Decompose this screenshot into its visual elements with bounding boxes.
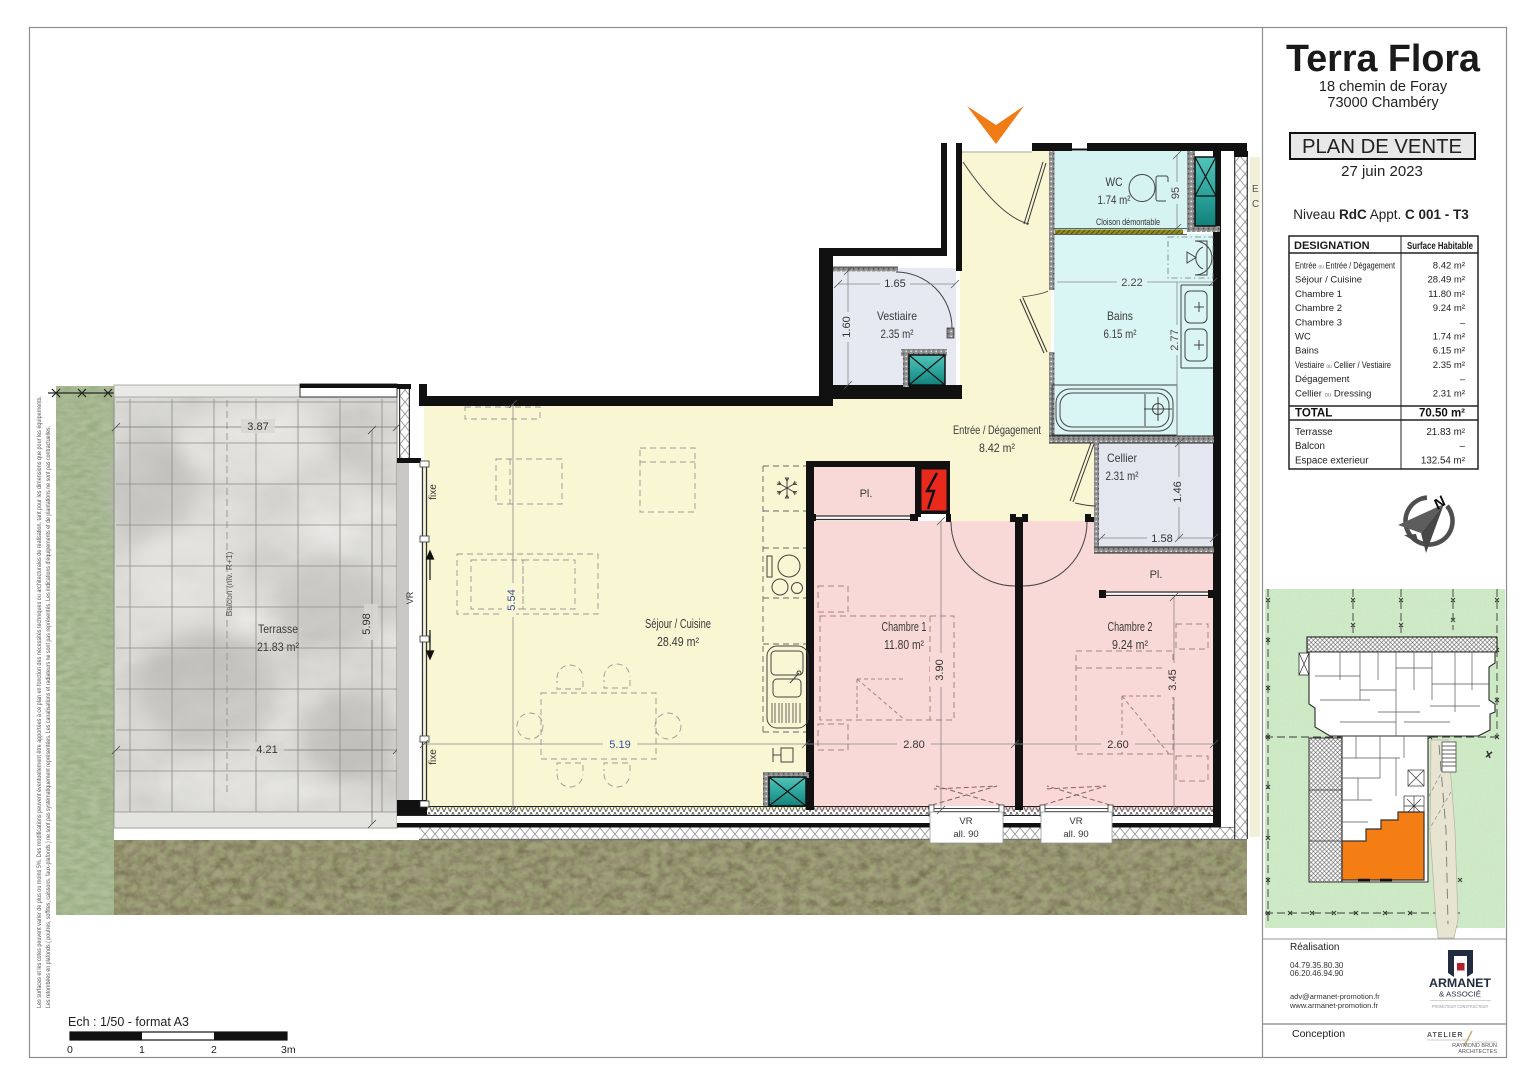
svg-text:Bains: Bains bbox=[1107, 309, 1133, 323]
svg-text:3m: 3m bbox=[281, 1044, 296, 1056]
svg-text:1.58: 1.58 bbox=[1151, 533, 1172, 545]
svg-text:PROMOTEUR CONSTRUCTEUR: PROMOTEUR CONSTRUCTEUR bbox=[1432, 1004, 1489, 1009]
svg-text:Terrasse: Terrasse bbox=[1295, 427, 1333, 438]
svg-text:3.87: 3.87 bbox=[247, 421, 268, 433]
svg-text:Vestiaire ou Cellier / Vestiai: Vestiaire ou Cellier / Vestiaire bbox=[1295, 360, 1391, 371]
svg-text:Conception: Conception bbox=[1292, 1028, 1345, 1040]
svg-text:Ech : 1/50 - format A3: Ech : 1/50 - format A3 bbox=[68, 1015, 189, 1029]
svg-text:Cellier: Cellier bbox=[1107, 451, 1137, 465]
svg-text:3.90: 3.90 bbox=[934, 659, 946, 680]
svg-text:Vestiaire: Vestiaire bbox=[877, 309, 917, 323]
svg-text:Balcon (niv. R+1): Balcon (niv. R+1) bbox=[224, 551, 234, 616]
svg-text:70.50 m²: 70.50 m² bbox=[1419, 408, 1465, 420]
svg-text:ATELIER: ATELIER bbox=[1427, 1032, 1463, 1039]
svg-text:2.80: 2.80 bbox=[903, 739, 924, 751]
svg-text:TOTAL: TOTAL bbox=[1295, 408, 1332, 420]
svg-text:–: – bbox=[1460, 441, 1466, 452]
svg-text:2.22: 2.22 bbox=[1121, 277, 1142, 289]
svg-text:fixe: fixe bbox=[428, 749, 439, 765]
svg-text:Bains: Bains bbox=[1295, 346, 1319, 357]
svg-text:Entrée ou Entrée / Dégagement: Entrée ou Entrée / Dégagement bbox=[1295, 261, 1395, 272]
svg-text:fixe: fixe bbox=[428, 484, 439, 500]
svg-text:Espace exterieur: Espace exterieur bbox=[1295, 455, 1369, 466]
svg-text:11.80 m²: 11.80 m² bbox=[1428, 289, 1465, 300]
svg-text:2.60: 2.60 bbox=[1107, 739, 1128, 751]
svg-text:2.35 m²: 2.35 m² bbox=[1433, 360, 1465, 371]
svg-text:95: 95 bbox=[1170, 187, 1182, 199]
svg-text:ARCHITECTES: ARCHITECTES bbox=[1458, 1049, 1497, 1055]
svg-text:adv@armanet-promotion.fr: adv@armanet-promotion.fr bbox=[1290, 992, 1380, 1001]
svg-text:Pl.: Pl. bbox=[1150, 569, 1163, 581]
svg-text:Réalisation: Réalisation bbox=[1290, 942, 1339, 953]
svg-text:6.15 m²: 6.15 m² bbox=[1433, 346, 1465, 357]
svg-text:WC: WC bbox=[1106, 175, 1123, 189]
svg-text:4.21: 4.21 bbox=[256, 744, 277, 756]
svg-text:73000 Chambéry: 73000 Chambéry bbox=[1327, 95, 1439, 111]
svg-text:27 juin 2023: 27 juin 2023 bbox=[1341, 163, 1423, 180]
svg-text:28.49 m²: 28.49 m² bbox=[1428, 275, 1466, 286]
svg-text:DESIGNATION: DESIGNATION bbox=[1294, 240, 1370, 252]
svg-text:28.49 m²: 28.49 m² bbox=[657, 635, 699, 649]
svg-text:www.armanet-promotion.fr: www.armanet-promotion.fr bbox=[1289, 1001, 1378, 1010]
svg-text:5.54: 5.54 bbox=[506, 589, 518, 610]
svg-text:Balcon: Balcon bbox=[1295, 441, 1325, 452]
svg-text:1.60: 1.60 bbox=[841, 316, 853, 337]
svg-text:3.45: 3.45 bbox=[1167, 669, 1179, 690]
svg-text:Les retombées en plafonds ( po: Les retombées en plafonds ( poutres, sof… bbox=[46, 426, 52, 1008]
svg-text:2: 2 bbox=[211, 1044, 217, 1056]
svg-text:0: 0 bbox=[67, 1044, 73, 1056]
svg-text:Terra Flora: Terra Flora bbox=[1286, 38, 1481, 80]
svg-text:PLAN DE VENTE: PLAN DE VENTE bbox=[1302, 136, 1462, 158]
svg-text:21.83 m²: 21.83 m² bbox=[1426, 427, 1465, 438]
svg-text:Terrasse: Terrasse bbox=[258, 622, 298, 636]
svg-text:VR: VR bbox=[959, 816, 972, 827]
svg-text:Cloison démontable: Cloison démontable bbox=[1096, 217, 1160, 227]
svg-text:Séjour / Cuisine: Séjour / Cuisine bbox=[645, 617, 711, 631]
svg-text:132.54 m²: 132.54 m² bbox=[1421, 455, 1466, 466]
svg-text:& ASSOCIÉ: & ASSOCIÉ bbox=[1439, 990, 1481, 999]
svg-text:2.35 m²: 2.35 m² bbox=[881, 327, 914, 341]
svg-text:ARMANET: ARMANET bbox=[1429, 976, 1492, 990]
svg-text:Pl.: Pl. bbox=[860, 488, 873, 500]
svg-text:Chambre 2: Chambre 2 bbox=[1295, 303, 1342, 314]
svg-text:Les surfaces et les cotes peuv: Les surfaces et les cotes peuvent varier… bbox=[37, 396, 43, 1008]
svg-text:9.24 m²: 9.24 m² bbox=[1433, 303, 1465, 314]
svg-text:18 chemin de Foray: 18 chemin de Foray bbox=[1319, 79, 1448, 95]
svg-text:C: C bbox=[1252, 199, 1259, 210]
svg-text:2.31 m²: 2.31 m² bbox=[1433, 388, 1465, 399]
svg-text:Chambre 3: Chambre 3 bbox=[1295, 317, 1342, 328]
svg-text:Chambre 1: Chambre 1 bbox=[882, 620, 927, 634]
svg-text:1.65: 1.65 bbox=[884, 278, 905, 290]
svg-text:–: – bbox=[1460, 374, 1466, 385]
svg-text:5.19: 5.19 bbox=[609, 739, 630, 751]
svg-text:Chambre 1: Chambre 1 bbox=[1295, 289, 1342, 300]
svg-text:VR: VR bbox=[405, 591, 415, 604]
svg-text:–: – bbox=[1460, 317, 1466, 328]
svg-text:1.46: 1.46 bbox=[1172, 481, 1184, 502]
svg-text:6.15 m²: 6.15 m² bbox=[1104, 327, 1137, 341]
svg-text:1.74 m²: 1.74 m² bbox=[1098, 193, 1131, 207]
svg-text:Cellier ou Dressing: Cellier ou Dressing bbox=[1295, 388, 1371, 399]
svg-text:2.31 m²: 2.31 m² bbox=[1106, 469, 1139, 483]
svg-text:Entrée / Dégagement: Entrée / Dégagement bbox=[953, 423, 1042, 437]
svg-text:Niveau RdC Appt. C 001 - T: Niveau RdC Appt. C 001 - T3 bbox=[1293, 207, 1469, 222]
svg-text:E: E bbox=[1252, 184, 1259, 195]
svg-text:8.42 m²: 8.42 m² bbox=[979, 441, 1015, 455]
svg-text:VR: VR bbox=[1069, 816, 1082, 827]
svg-text:21.83 m²: 21.83 m² bbox=[257, 640, 299, 654]
svg-text:WC: WC bbox=[1295, 332, 1311, 343]
svg-text:2.77: 2.77 bbox=[1169, 329, 1181, 350]
svg-text:all. 90: all. 90 bbox=[953, 829, 978, 840]
svg-text:06.20.46.94.90: 06.20.46.94.90 bbox=[1290, 969, 1344, 978]
svg-text:11.80 m²: 11.80 m² bbox=[884, 638, 924, 652]
svg-text:5.98: 5.98 bbox=[361, 613, 373, 634]
svg-text:1: 1 bbox=[139, 1044, 145, 1056]
svg-text:Séjour / Cuisine: Séjour / Cuisine bbox=[1295, 275, 1362, 286]
svg-text:8.42 m²: 8.42 m² bbox=[1433, 261, 1465, 272]
svg-text:9.24 m²: 9.24 m² bbox=[1112, 638, 1148, 652]
svg-text:Surface Habitable: Surface Habitable bbox=[1407, 241, 1473, 252]
svg-text:all. 90: all. 90 bbox=[1063, 829, 1088, 840]
svg-text:1.74 m²: 1.74 m² bbox=[1433, 332, 1465, 343]
svg-text:Dégagement: Dégagement bbox=[1295, 374, 1350, 385]
svg-text:Chambre 2: Chambre 2 bbox=[1108, 620, 1153, 634]
